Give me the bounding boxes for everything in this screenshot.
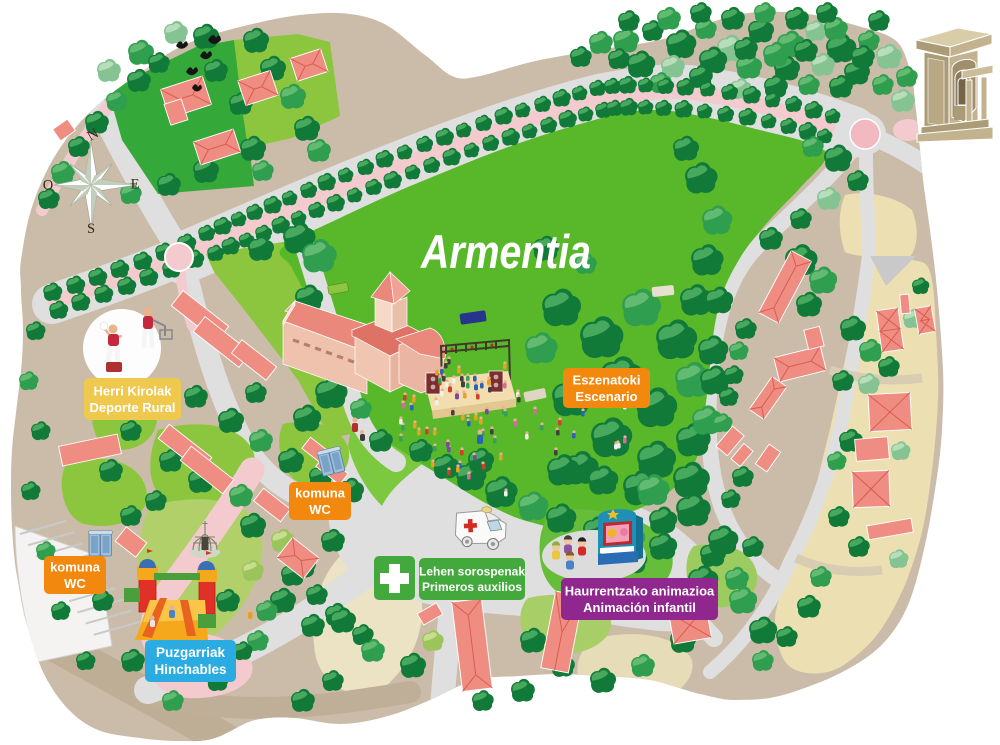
svg-text:Armentia: Armentia [420, 225, 591, 278]
svg-text:komuna: komuna [295, 485, 346, 500]
svg-text:WC: WC [309, 502, 331, 517]
svg-text:E: E [131, 177, 140, 193]
svg-text:Animación infantil: Animación infantil [583, 600, 696, 615]
svg-text:Puzgarriak: Puzgarriak [156, 645, 226, 660]
svg-text:O: O [43, 178, 53, 194]
svg-text:Primeros auxilios: Primeros auxilios [422, 580, 522, 594]
svg-text:Escenario: Escenario [575, 389, 637, 404]
svg-text:Hinchables: Hinchables [154, 662, 226, 677]
svg-text:Herri Kirolak: Herri Kirolak [93, 383, 172, 398]
svg-text:WC: WC [64, 576, 86, 591]
svg-text:komuna: komuna [50, 559, 101, 574]
svg-text:Haurrentzako animazioa: Haurrentzako animazioa [565, 583, 715, 598]
svg-text:Deporte Rural: Deporte Rural [90, 400, 176, 415]
svg-text:Eszenatoki: Eszenatoki [573, 372, 641, 387]
svg-text:Lehen sorospenak: Lehen sorospenak [419, 565, 525, 579]
svg-text:S: S [87, 221, 95, 237]
